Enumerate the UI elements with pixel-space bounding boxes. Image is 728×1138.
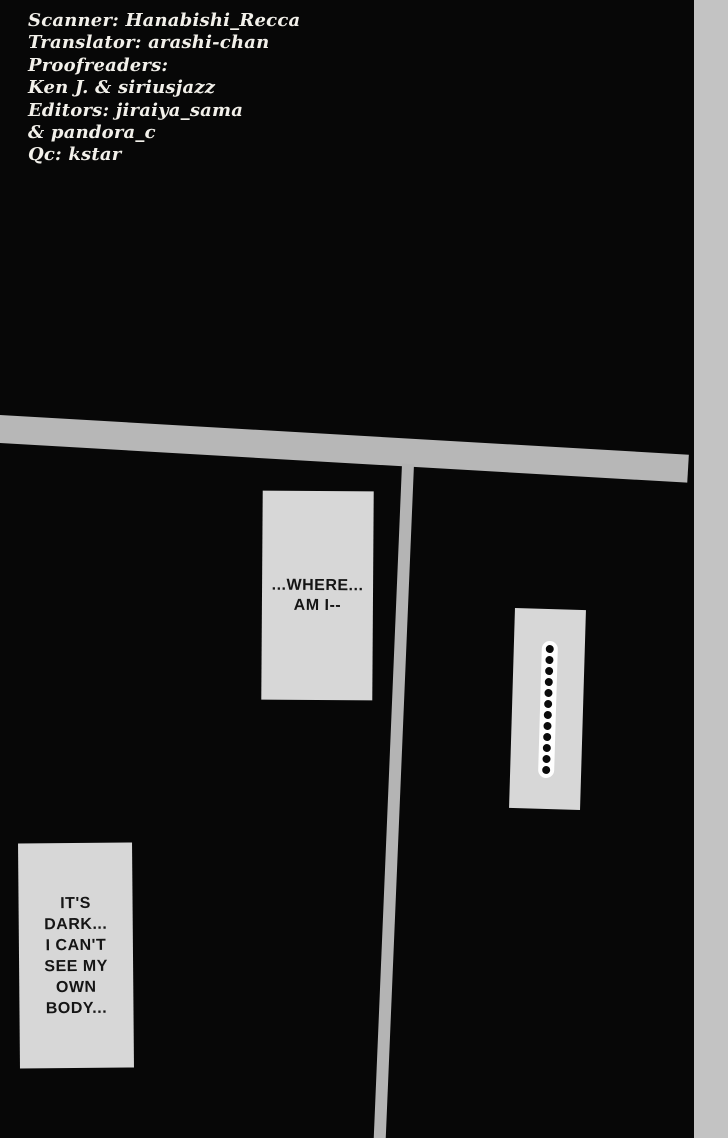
caption-text-line: DARK...: [44, 913, 107, 935]
credit-line-scanner: Scanner: Hanabishi_Recca: [28, 10, 300, 32]
ellipsis-dot-icon: [544, 688, 552, 696]
ellipsis-dot-icon: [542, 765, 550, 773]
credit-line-editors: Editors: jiraiya_sama: [28, 100, 300, 122]
ellipsis-dots-strip: [537, 640, 557, 777]
panel-divider-vertical: [374, 464, 414, 1138]
credit-line-qc: Qc: kstar: [28, 144, 300, 166]
ellipsis-dot-icon: [545, 655, 553, 663]
ellipsis-dot-icon: [543, 732, 551, 740]
caption-text-line: ...WHERE...: [272, 575, 364, 596]
ellipsis-dot-icon: [542, 743, 550, 751]
credits-block: Scanner: Hanabishi_Recca Translator: ara…: [28, 10, 300, 167]
ellipsis-dot-icon: [544, 677, 552, 685]
credit-line-editor-names: & pandora_c: [28, 122, 300, 144]
ellipsis-dot-icon: [544, 699, 552, 707]
caption-text-line: AM I--: [294, 595, 342, 615]
caption-text-line: BODY...: [46, 997, 107, 1019]
ellipsis-dot-icon: [545, 666, 553, 674]
caption-text-line: I CAN'T: [45, 934, 106, 956]
manga-page: Scanner: Hanabishi_Recca Translator: ara…: [0, 0, 728, 1138]
caption-box-silence: [509, 608, 586, 810]
caption-text-line: SEE MY: [44, 955, 108, 977]
ellipsis-dot-icon: [545, 644, 553, 652]
ellipsis-dot-icon: [542, 754, 550, 762]
panel-border-horizontal: [0, 415, 689, 483]
caption-text-line: IT'S: [60, 892, 91, 913]
ellipsis-dot-icon: [543, 721, 551, 729]
caption-box-where: ...WHERE... AM I--: [261, 491, 373, 701]
credit-line-proofreader-names: Ken J. & siriusjazz: [28, 77, 300, 99]
ellipsis-dot-icon: [543, 710, 551, 718]
credit-line-proofreaders: Proofreaders:: [28, 55, 300, 77]
caption-box-dark: IT'S DARK... I CAN'T SEE MY OWN BODY...: [18, 843, 134, 1069]
caption-text-line: OWN: [56, 976, 97, 997]
credit-line-translator: Translator: arashi-chan: [28, 32, 300, 54]
page-edge-strip: [694, 0, 728, 1138]
